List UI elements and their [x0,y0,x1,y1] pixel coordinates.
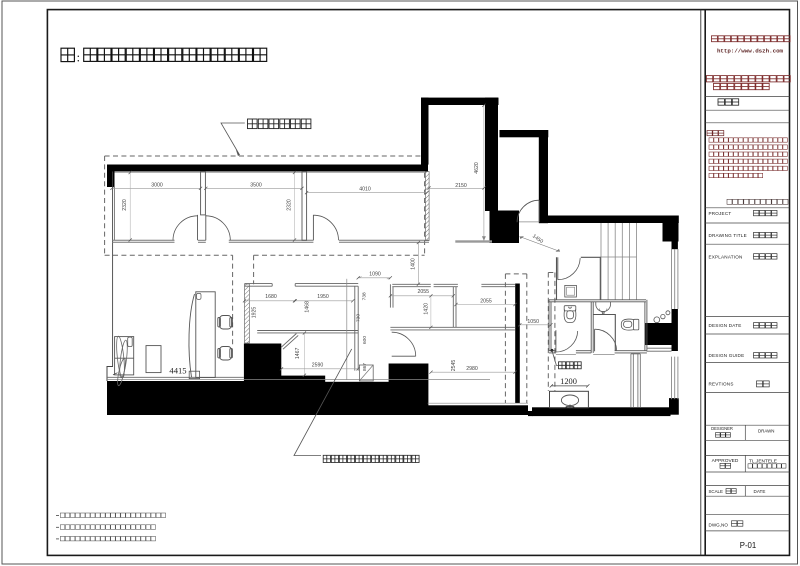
svg-text:730: 730 [355,314,361,322]
svg-text:3000: 3000 [151,182,163,188]
svg-text:DRAWN: DRAWN [758,429,774,434]
svg-text:1680: 1680 [265,294,277,300]
svg-text:P-01: P-01 [740,541,756,550]
svg-text:1090: 1090 [369,271,381,277]
svg-text:2545: 2545 [451,360,457,372]
svg-text:600: 600 [362,336,368,344]
svg-text:TL.JENTELE: TL.JENTELE [749,458,777,464]
svg-text:1925: 1925 [251,307,257,319]
svg-text:DESIGN GUIDE: DESIGN GUIDE [709,353,745,358]
svg-text:2055: 2055 [418,289,430,295]
svg-text:1468: 1468 [305,301,311,313]
svg-text:4415: 4415 [169,366,186,376]
svg-text:1467: 1467 [295,348,301,360]
svg-text:1050: 1050 [527,319,539,325]
svg-text:1200: 1200 [560,377,577,386]
svg-text::: : [77,50,81,65]
svg-text:DWG,NO: DWG,NO [709,522,729,527]
svg-text:http://www.dszh.com: http://www.dszh.com [717,48,784,55]
svg-text:DRAWING TITLE: DRAWING TITLE [709,233,747,238]
svg-text:EXPLANATION: EXPLANATION [709,254,743,259]
svg-text:738: 738 [362,292,368,300]
svg-text:2320: 2320 [122,199,128,211]
svg-text:DESIGN DATE: DESIGN DATE [709,323,742,328]
svg-text:2150: 2150 [455,183,467,189]
svg-text:4620: 4620 [474,162,480,174]
svg-text:1420: 1420 [423,303,429,315]
svg-text:4010: 4010 [359,187,371,193]
svg-text:1950: 1950 [317,294,329,300]
svg-text:SCALE: SCALE [709,489,723,494]
svg-text:2320: 2320 [287,199,293,211]
svg-text:2055: 2055 [480,298,492,304]
svg-text:2980: 2980 [466,366,478,372]
svg-text:DESIGNER: DESIGNER [711,426,733,431]
svg-text:1400: 1400 [411,258,417,270]
svg-text:2590: 2590 [312,362,324,368]
svg-text:PROJECT: PROJECT [709,211,732,216]
svg-text:867: 867 [362,363,368,371]
svg-text:DATE: DATE [754,489,766,494]
svg-text:3500: 3500 [250,182,262,188]
svg-text:REVTIONS: REVTIONS [709,382,734,387]
